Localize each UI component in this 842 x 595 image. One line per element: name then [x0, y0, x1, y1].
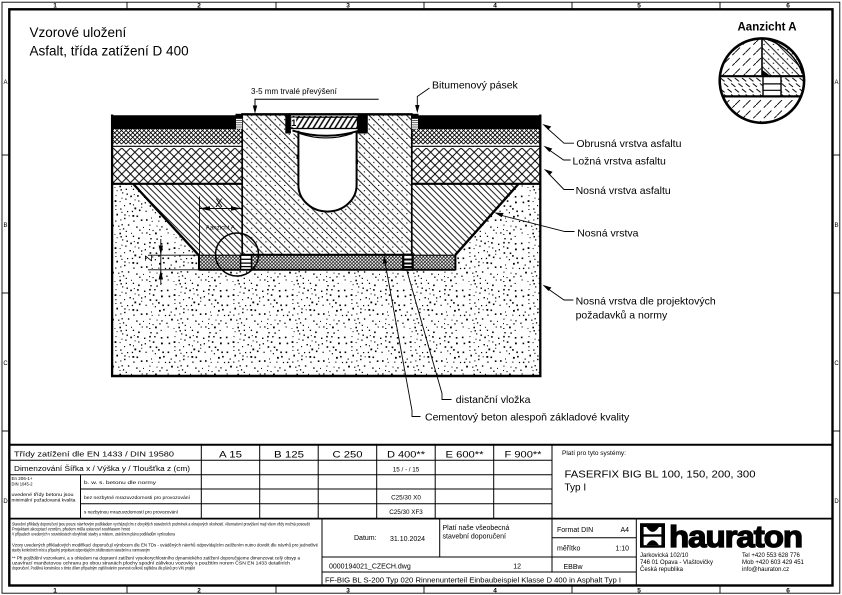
svg-text:Dimenzování Šířka x / Výška: Dimenzování Šířka x / Výška y / Tloušťka… [14, 464, 190, 473]
svg-text:D: D [834, 499, 839, 505]
svg-text:Mob +420 603 429 451: Mob +420 603 429 451 [742, 560, 805, 566]
svg-text:FASERFIX BIG BL 100, 150, 200,: FASERFIX BIG BL 100, 150, 200, 300 [565, 470, 756, 481]
svg-text:Vzorové uložení: Vzorové uložení [30, 25, 127, 40]
svg-text:A 15: A 15 [219, 450, 242, 460]
svg-text:Aanzicht A: Aanzicht A [206, 225, 236, 232]
svg-text:Typ I: Typ I [565, 483, 587, 494]
svg-text:D: D [3, 499, 8, 505]
svg-text:požadavků a normy: požadavků a normy [576, 310, 668, 322]
svg-text:D 400**: D 400** [387, 450, 426, 460]
svg-text:FF-BIG BL S-200 Typ 020 Rinnen: FF-BIG BL S-200 Typ 020 Rinnenunterteil … [325, 575, 621, 584]
svg-text:DIN 1045-2: DIN 1045-2 [12, 481, 34, 486]
svg-text:V případech uvedených v souvis: V případech uvedených v souvislostech ob… [12, 531, 176, 536]
svg-text:X: X [215, 198, 223, 210]
svg-text:4: 4 [493, 588, 497, 595]
svg-text:3: 3 [346, 3, 350, 10]
svg-text:B: B [834, 223, 838, 229]
svg-text:Jarkovická 102/10: Jarkovická 102/10 [640, 553, 689, 559]
svg-text:uvedené třídy betonu jsou: uvedené třídy betonu jsou [12, 492, 75, 497]
svg-text:doporučení. Podélná konstrukce: doporučení. Podélná konstrukce s tímto d… [12, 565, 196, 570]
svg-text:En 206-1+: En 206-1+ [12, 476, 34, 481]
svg-text:stavební doporučení: stavební doporučení [443, 533, 506, 540]
svg-text:6: 6 [786, 3, 790, 10]
svg-text:A: A [834, 80, 838, 86]
svg-text:s nezbytnou mrazuvzdorností pr: s nezbytnou mrazuvzdorností pro provozov… [84, 510, 179, 515]
svg-text:1:10: 1:10 [615, 546, 629, 553]
svg-text:Asfalt, třída zatížení D 400: Asfalt, třída zatížení D 400 [30, 44, 189, 59]
svg-text:2: 2 [197, 3, 201, 10]
svg-text:minimální požadovaná kvalita: minimální požadovaná kvalita [12, 498, 77, 503]
svg-text:C25/30 XF3: C25/30 XF3 [389, 509, 423, 516]
svg-text:Nosná vrstva: Nosná vrstva [577, 227, 638, 239]
svg-text:Platí pro tyto systémy:: Platí pro tyto systémy: [562, 450, 626, 457]
svg-text:bez nezbytné mrazuvzdornosti p: bez nezbytné mrazuvzdornosti pro provozo… [84, 495, 191, 500]
svg-text:Obrusná vrstva asfaltu: Obrusná vrstva asfaltu [576, 138, 681, 150]
svg-text:Cementový beton alespoň základ: Cementový beton alespoň základové kvalit… [425, 412, 630, 424]
svg-text:Česká republika: Česká republika [640, 566, 684, 573]
svg-text:C25/30 X0: C25/30 X0 [391, 495, 421, 502]
svg-text:hauraton: hauraton [669, 519, 802, 554]
svg-text:Nosná vrstva asfaltu: Nosná vrstva asfaltu [576, 185, 671, 197]
svg-text:stavby konkrétních míst a příp: stavby konkrétních míst a případný proje… [12, 548, 150, 553]
svg-text:Třídy zatížení dle EN 1433 / D: Třídy zatížení dle EN 1433 / DIN 19580 [14, 452, 174, 459]
svg-text:1: 1 [291, 118, 296, 128]
svg-text:Datum:: Datum: [354, 535, 377, 542]
svg-text:A: A [3, 80, 7, 86]
svg-text:746 01 Opava - Vlaštovičky: 746 01 Opava - Vlaštovičky [640, 560, 713, 566]
svg-text:A4: A4 [620, 527, 629, 534]
svg-text:EBBw: EBBw [564, 564, 584, 571]
svg-text:info@hauraton.cz: info@hauraton.cz [742, 567, 789, 573]
svg-text:15 / - / 15: 15 / - / 15 [393, 466, 420, 473]
svg-text:1: 1 [53, 3, 57, 10]
svg-text:B 125: B 125 [274, 450, 304, 460]
svg-text:Nosná vrstva dle projektových: Nosná vrstva dle projektových [576, 296, 716, 308]
svg-text:Bitumenový pásek: Bitumenový pásek [432, 80, 519, 92]
svg-text:Tel +420 553 628 776: Tel +420 553 628 776 [742, 553, 801, 559]
svg-text:2: 2 [197, 588, 201, 595]
svg-text:Ložná vrstva asfaltu: Ložná vrstva asfaltu [573, 156, 667, 168]
svg-text:B: B [3, 223, 7, 229]
svg-text:3-5 mm trvalé převýšení: 3-5 mm trvalé převýšení [251, 87, 338, 96]
svg-text:31.10.2024: 31.10.2024 [390, 536, 425, 543]
svg-text:b. w. s. betonu dle normy: b. w. s. betonu dle normy [84, 480, 157, 485]
svg-text:12: 12 [513, 564, 521, 571]
svg-text:C: C [834, 361, 839, 367]
svg-text:C 250: C 250 [333, 450, 363, 460]
svg-text:4: 4 [493, 3, 497, 10]
svg-text:5: 5 [637, 3, 641, 10]
svg-text:3: 3 [346, 588, 350, 595]
svg-text:F 900**: F 900** [505, 450, 543, 460]
svg-text:5: 5 [637, 588, 641, 595]
svg-text:C: C [3, 361, 8, 367]
svg-text:Platí naše všeobecná: Platí naše všeobecná [443, 525, 510, 532]
svg-text:1: 1 [53, 588, 57, 595]
svg-text:Z: Z [143, 255, 155, 262]
svg-text:E 600**: E 600** [446, 450, 485, 460]
svg-text:měřítko: měřítko [557, 546, 580, 553]
svg-text:Format DIN: Format DIN [557, 527, 593, 534]
svg-text:distanční vložka: distanční vložka [456, 394, 531, 406]
svg-text:6: 6 [786, 588, 790, 595]
svg-text:0000194021_CZECH.dwg: 0000194021_CZECH.dwg [329, 564, 411, 571]
svg-text:Aanzicht A: Aanzicht A [738, 22, 797, 34]
